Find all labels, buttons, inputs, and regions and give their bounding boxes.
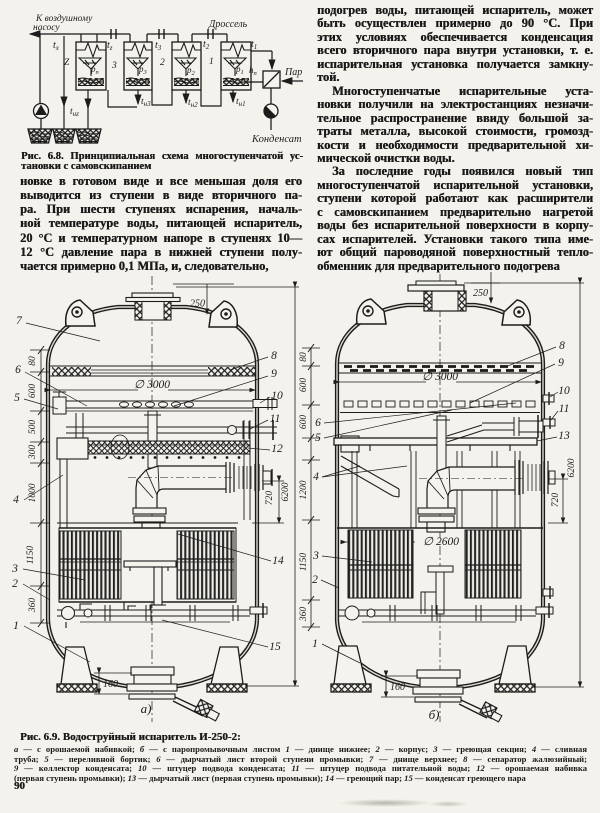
svg-text:б): б) bbox=[429, 707, 440, 722]
svg-text:3: 3 bbox=[111, 61, 117, 71]
svg-text:10: 10 bbox=[271, 390, 283, 402]
svg-text:6: 6 bbox=[15, 364, 21, 376]
svg-text:300: 300 bbox=[28, 445, 38, 461]
svg-text:11: 11 bbox=[270, 413, 281, 425]
svg-text:8: 8 bbox=[559, 340, 565, 352]
svg-text:1200: 1200 bbox=[299, 480, 309, 499]
svg-text:t2: t2 bbox=[203, 39, 210, 51]
svg-text:160: 160 bbox=[103, 679, 118, 690]
svg-text:tx: tx bbox=[53, 40, 60, 52]
svg-text:250: 250 bbox=[190, 299, 205, 310]
svg-text:Z: Z bbox=[64, 58, 70, 68]
svg-text:насосу: насосу bbox=[33, 23, 60, 33]
svg-text:11: 11 bbox=[559, 403, 570, 415]
svg-text:hп: hп bbox=[249, 65, 257, 77]
svg-text:600: 600 bbox=[28, 384, 38, 399]
svg-text:tz: tz bbox=[107, 40, 113, 52]
svg-text:600: 600 bbox=[299, 378, 309, 393]
svg-text:t3: t3 bbox=[155, 40, 162, 52]
svg-text:6: 6 bbox=[315, 417, 321, 429]
svg-text:2: 2 bbox=[12, 578, 18, 590]
svg-text:Дроссель: Дроссель bbox=[208, 19, 248, 30]
svg-text:80: 80 bbox=[28, 356, 38, 366]
svg-text:2: 2 bbox=[312, 574, 318, 586]
svg-text:9: 9 bbox=[271, 368, 277, 380]
svg-text:1150: 1150 bbox=[26, 546, 36, 565]
svg-text:720: 720 bbox=[265, 491, 275, 506]
svg-text:13: 13 bbox=[558, 430, 570, 442]
svg-text:600: 600 bbox=[299, 415, 309, 430]
svg-text:1: 1 bbox=[209, 57, 214, 67]
svg-text:p1: p1 bbox=[235, 64, 244, 76]
svg-text:1: 1 bbox=[312, 638, 318, 650]
svg-text:8: 8 bbox=[271, 350, 277, 362]
svg-text:1: 1 bbox=[13, 620, 19, 632]
svg-text:∅ 2600: ∅ 2600 bbox=[423, 536, 459, 548]
svg-text:Конденсат: Конденсат bbox=[251, 134, 302, 145]
svg-text:Пар: Пар bbox=[284, 67, 302, 78]
svg-text:tнz: tнz bbox=[70, 107, 79, 118]
svg-text:12: 12 bbox=[271, 443, 283, 455]
svg-text:tн1: tн1 bbox=[236, 97, 246, 108]
svg-text:6200: 6200 bbox=[567, 458, 577, 477]
svg-text:80: 80 bbox=[299, 352, 309, 362]
svg-text:6200: 6200 bbox=[281, 482, 291, 501]
svg-text:5: 5 bbox=[315, 432, 321, 444]
svg-text:а): а) bbox=[141, 701, 152, 716]
svg-text:3: 3 bbox=[11, 563, 18, 575]
svg-text:∅ 3000: ∅ 3000 bbox=[134, 379, 170, 391]
svg-text:t1: t1 bbox=[251, 39, 257, 51]
svg-text:360: 360 bbox=[28, 598, 38, 614]
svg-text:4: 4 bbox=[13, 494, 19, 506]
svg-text:4: 4 bbox=[313, 471, 319, 483]
svg-text:3: 3 bbox=[312, 550, 319, 562]
svg-text:1000: 1000 bbox=[28, 483, 38, 502]
svg-text:tн2: tн2 bbox=[188, 98, 198, 109]
svg-text:1150: 1150 bbox=[299, 553, 309, 572]
svg-text:250: 250 bbox=[473, 288, 488, 299]
svg-text:160: 160 bbox=[390, 682, 405, 693]
svg-text:p3: p3 bbox=[138, 64, 148, 76]
svg-text:2: 2 bbox=[160, 58, 165, 68]
svg-text:7: 7 bbox=[16, 315, 23, 327]
svg-text:tн3: tн3 bbox=[141, 97, 151, 108]
svg-text:720: 720 bbox=[551, 493, 561, 508]
svg-text:p2: p2 bbox=[186, 65, 196, 77]
svg-text:15: 15 bbox=[269, 641, 281, 653]
svg-text:9: 9 bbox=[558, 357, 564, 369]
svg-text:10: 10 bbox=[558, 385, 570, 397]
svg-text:∅ 3000: ∅ 3000 bbox=[422, 371, 458, 383]
svg-text:5: 5 bbox=[14, 392, 20, 404]
svg-text:14: 14 bbox=[272, 555, 284, 567]
svg-text:500: 500 bbox=[28, 420, 38, 435]
svg-text:360: 360 bbox=[299, 607, 309, 623]
